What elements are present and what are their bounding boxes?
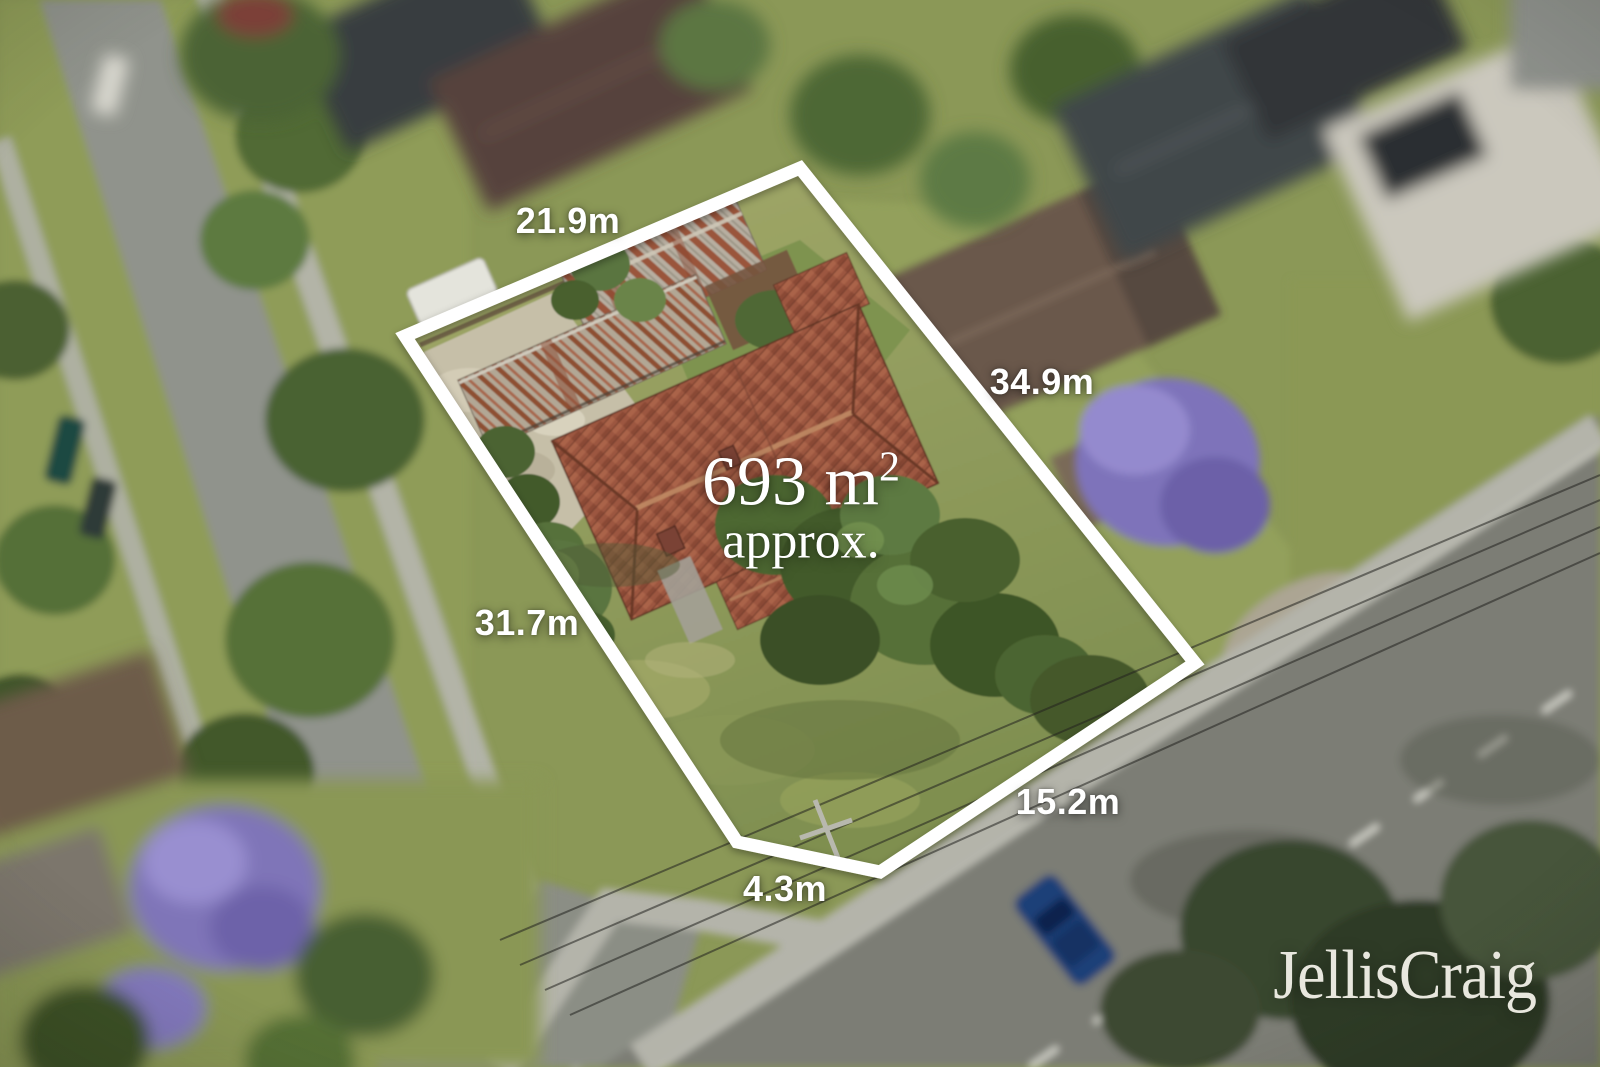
- dimension-label-right: 34.9m: [990, 361, 1095, 403]
- area-number: 693 m: [702, 444, 879, 521]
- dimension-label-top: 21.9m: [516, 200, 621, 242]
- area-label: 693 m2 approx.: [702, 437, 900, 570]
- brand-logo: JellisCraig: [1273, 934, 1536, 1015]
- dimension-label-bottom-right: 15.2m: [1016, 781, 1121, 823]
- dimension-label-left: 31.7m: [475, 602, 580, 644]
- aerial-property-photo: 21.9m 34.9m 31.7m 15.2m 4.3m 693 m2 appr…: [0, 0, 1600, 1067]
- area-qualifier: approx.: [702, 514, 900, 570]
- area-value: 693 m2: [702, 437, 900, 514]
- dimension-label-bottom: 4.3m: [743, 868, 827, 910]
- area-superscript: 2: [879, 445, 900, 491]
